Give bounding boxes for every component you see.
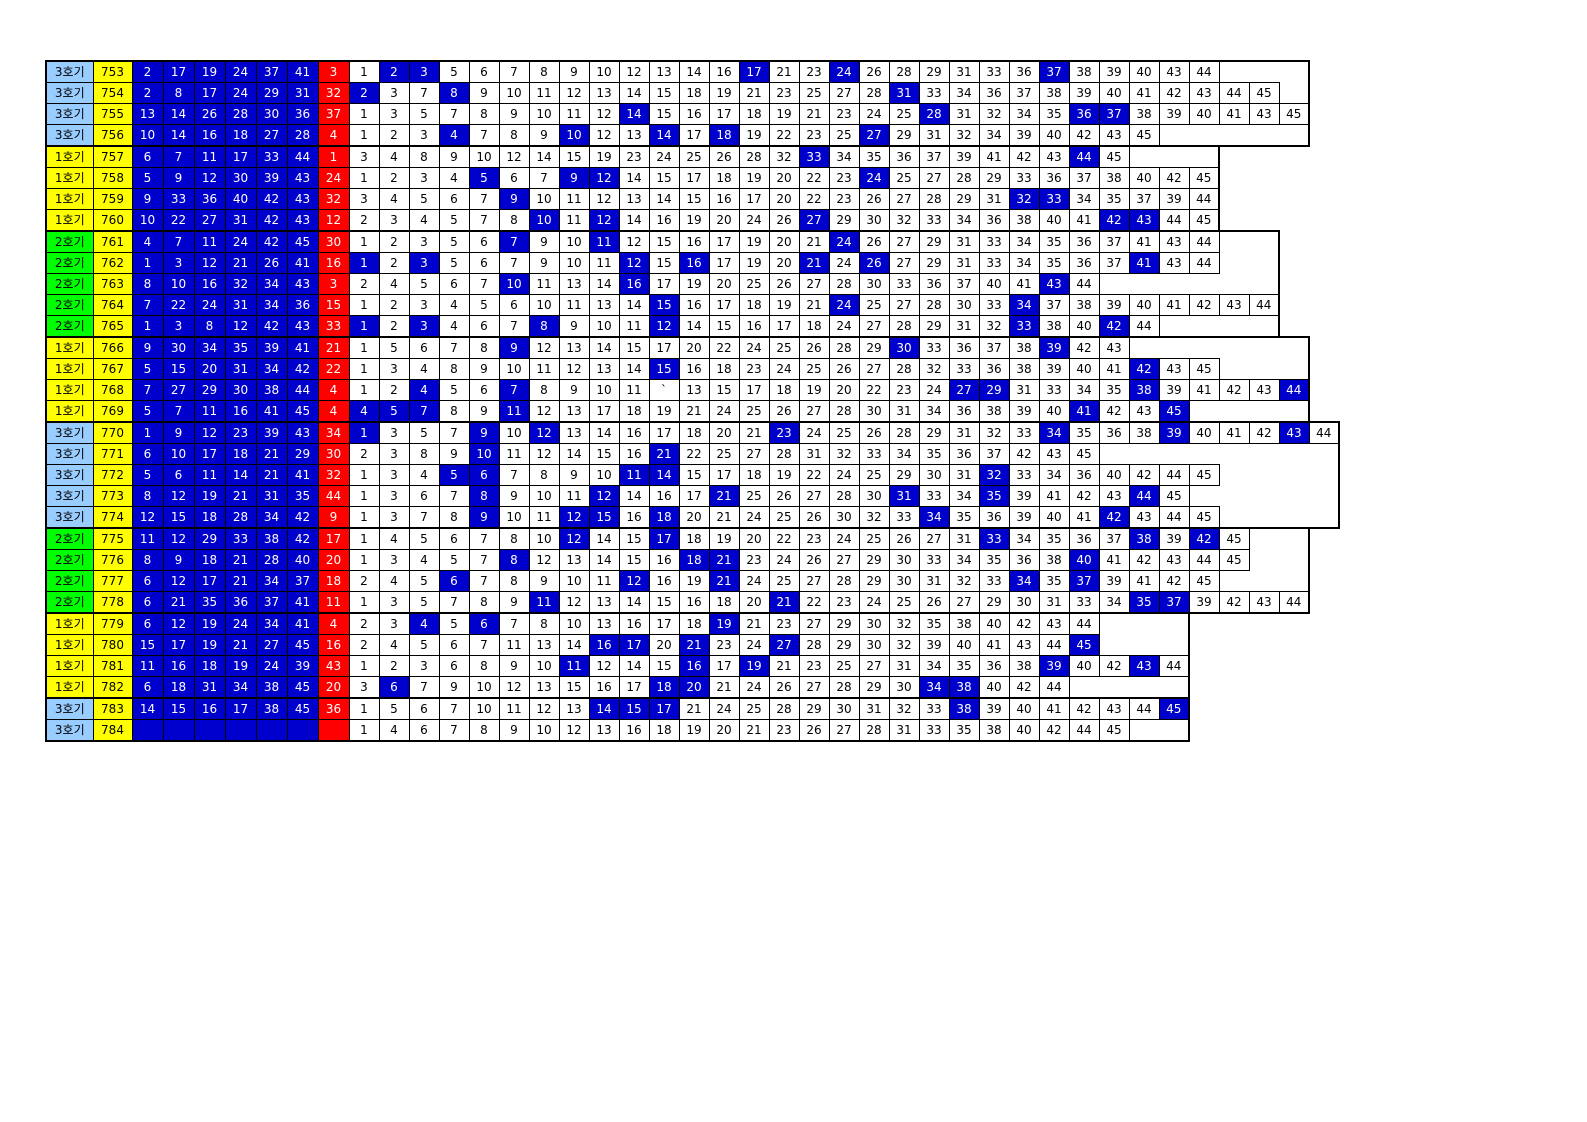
number-grid-cell[interactable]: 27 (889, 189, 919, 210)
round-number-cell[interactable]: 755 (93, 104, 132, 125)
number-grid-cell[interactable]: 20 (769, 253, 799, 274)
machine-label-cell[interactable]: 1호기 (46, 210, 93, 232)
number-grid-cell-highlighted[interactable]: 7 (499, 231, 529, 253)
winning-number-cell[interactable]: 16 (194, 698, 225, 720)
number-grid-cell-highlighted[interactable]: 7 (409, 401, 439, 423)
number-grid-cell[interactable]: 7 (409, 677, 439, 699)
number-grid-cell[interactable]: 10 (589, 380, 619, 401)
number-grid-cell-highlighted[interactable]: 19 (739, 656, 769, 677)
machine-label-cell[interactable]: 3호기 (46, 83, 93, 104)
winning-number-cell[interactable]: 8 (132, 486, 163, 507)
number-grid-cell[interactable]: 17 (679, 168, 709, 189)
winning-number-cell[interactable]: 24 (225, 231, 256, 253)
number-grid-cell[interactable]: 12 (499, 146, 529, 168)
machine-label-cell[interactable]: 1호기 (46, 656, 93, 677)
bonus-number-cell[interactable]: 4 (318, 613, 349, 635)
number-grid-cell[interactable]: 5 (409, 635, 439, 656)
number-grid-cell-highlighted[interactable]: 17 (649, 698, 679, 720)
number-grid-cell[interactable]: 29 (889, 125, 919, 147)
number-grid-cell[interactable]: 7 (439, 486, 469, 507)
winning-number-cell[interactable]: 10 (132, 210, 163, 232)
number-grid-cell[interactable]: 27 (829, 720, 859, 742)
number-grid-cell[interactable]: 43 (1189, 83, 1219, 104)
number-grid-cell-highlighted[interactable]: 12 (589, 486, 619, 507)
number-grid-cell[interactable]: 27 (799, 401, 829, 423)
winning-number-cell[interactable]: 6 (163, 465, 194, 486)
number-grid-cell-highlighted[interactable]: 37 (1159, 592, 1189, 614)
number-grid-cell[interactable]: 20 (769, 231, 799, 253)
number-grid-cell[interactable]: 21 (709, 507, 739, 529)
number-grid-cell-highlighted[interactable]: 44 (1279, 380, 1309, 401)
number-grid-cell[interactable]: 40 (1039, 125, 1069, 147)
number-grid-cell[interactable]: 17 (709, 656, 739, 677)
number-grid-cell[interactable]: 13 (529, 635, 559, 656)
winning-number-cell[interactable]: 18 (194, 507, 225, 529)
number-grid-cell[interactable]: 44 (1189, 253, 1219, 274)
number-grid-cell[interactable]: 10 (499, 83, 529, 104)
number-grid-cell[interactable]: 10 (559, 571, 589, 592)
number-grid-cell[interactable]: 20 (709, 274, 739, 295)
number-grid-cell[interactable]: 1 (349, 507, 379, 529)
number-grid-cell[interactable]: 6 (499, 168, 529, 189)
number-grid-cell-highlighted[interactable]: 3 (409, 61, 439, 83)
number-grid-cell-highlighted[interactable]: 45 (1159, 401, 1189, 423)
number-grid-cell[interactable]: 23 (769, 83, 799, 104)
number-grid-cell[interactable]: 38 (1039, 550, 1069, 571)
number-grid-cell[interactable]: 25 (829, 656, 859, 677)
winning-number-cell[interactable]: 35 (225, 337, 256, 359)
number-grid-cell-highlighted[interactable]: 8 (499, 550, 529, 571)
number-grid-cell[interactable]: 9 (469, 401, 499, 423)
number-grid-cell[interactable]: 15 (679, 465, 709, 486)
number-grid-cell[interactable]: 15 (649, 231, 679, 253)
number-grid-cell[interactable]: 7 (469, 571, 499, 592)
number-grid-cell[interactable]: 5 (439, 550, 469, 571)
machine-label-cell[interactable]: 3호기 (46, 720, 93, 742)
number-grid-cell-highlighted[interactable]: 36 (1069, 104, 1099, 125)
number-grid-cell[interactable]: 17 (709, 295, 739, 316)
machine-label-cell[interactable]: 1호기 (46, 337, 93, 359)
number-grid-cell[interactable]: 35 (1039, 253, 1069, 274)
winning-number-cell[interactable]: 43 (287, 189, 318, 210)
number-grid-cell-highlighted[interactable]: 14 (619, 104, 649, 125)
number-grid-cell[interactable]: 23 (769, 720, 799, 742)
number-grid-cell[interactable]: 42 (1159, 571, 1189, 592)
number-grid-cell[interactable]: ` (649, 380, 679, 401)
number-grid-cell[interactable]: 40 (949, 635, 979, 656)
number-grid-cell[interactable]: 16 (619, 613, 649, 635)
number-grid-cell[interactable]: 4 (409, 465, 439, 486)
number-grid-cell[interactable]: 39 (1009, 507, 1039, 529)
winning-number-cell[interactable]: 34 (256, 571, 287, 592)
winning-number-cell[interactable]: 43 (287, 168, 318, 189)
winning-number-cell[interactable] (132, 720, 163, 742)
number-grid-cell[interactable]: 43 (1159, 231, 1189, 253)
number-grid-cell[interactable]: 37 (919, 146, 949, 168)
number-grid-cell[interactable]: 31 (949, 104, 979, 125)
machine-label-cell[interactable]: 1호기 (46, 401, 93, 423)
number-grid-cell-highlighted[interactable]: 27 (769, 635, 799, 656)
number-grid-cell[interactable]: 17 (649, 274, 679, 295)
round-number-cell[interactable]: 771 (93, 444, 132, 465)
number-grid-cell[interactable]: 3 (379, 507, 409, 529)
winning-number-cell[interactable]: 8 (132, 550, 163, 571)
number-grid-cell-highlighted[interactable]: 44 (1129, 486, 1159, 507)
winning-number-cell[interactable]: 18 (163, 677, 194, 699)
number-grid-cell[interactable]: 1 (349, 656, 379, 677)
number-grid-cell[interactable]: 5 (409, 592, 439, 614)
winning-number-cell[interactable]: 34 (225, 677, 256, 699)
number-grid-cell[interactable]: 23 (619, 146, 649, 168)
round-number-cell[interactable]: 757 (93, 146, 132, 168)
number-grid-cell[interactable]: 39 (1159, 528, 1189, 550)
number-grid-cell[interactable]: 15 (649, 83, 679, 104)
number-grid-cell[interactable]: 42 (1159, 83, 1189, 104)
number-grid-cell[interactable]: 43 (1249, 104, 1279, 125)
winning-number-cell[interactable]: 34 (256, 274, 287, 295)
number-grid-cell[interactable]: 33 (1069, 592, 1099, 614)
number-grid-cell[interactable]: 28 (889, 422, 919, 444)
number-grid-cell-highlighted[interactable]: 15 (649, 359, 679, 380)
round-number-cell[interactable]: 774 (93, 507, 132, 529)
number-grid-cell-highlighted[interactable]: 37 (1099, 104, 1129, 125)
number-grid-cell[interactable]: 7 (409, 83, 439, 104)
number-grid-cell[interactable]: 23 (739, 359, 769, 380)
winning-number-cell[interactable]: 22 (163, 295, 194, 316)
number-grid-cell[interactable]: 9 (559, 465, 589, 486)
number-grid-cell[interactable]: 45 (1159, 486, 1189, 507)
machine-label-cell[interactable]: 2호기 (46, 295, 93, 316)
number-grid-cell[interactable]: 43 (1039, 444, 1069, 465)
number-grid-cell[interactable]: 43 (1129, 401, 1159, 423)
number-grid-cell[interactable]: 26 (769, 401, 799, 423)
number-grid-cell[interactable]: 43 (1009, 635, 1039, 656)
winning-number-cell[interactable]: 9 (132, 189, 163, 210)
number-grid-cell[interactable]: 38 (1009, 656, 1039, 677)
winning-number-cell[interactable]: 14 (163, 104, 194, 125)
number-grid-cell[interactable]: 14 (589, 528, 619, 550)
number-grid-cell-highlighted[interactable]: 33 (799, 146, 829, 168)
number-grid-cell[interactable]: 43 (1039, 146, 1069, 168)
winning-number-cell[interactable]: 15 (163, 359, 194, 380)
winning-number-cell[interactable]: 39 (256, 168, 287, 189)
number-grid-cell[interactable]: 15 (559, 677, 589, 699)
number-grid-cell[interactable]: 1 (349, 592, 379, 614)
winning-number-cell[interactable]: 28 (225, 507, 256, 529)
number-grid-cell[interactable]: 33 (979, 295, 1009, 316)
number-grid-cell[interactable]: 39 (1099, 571, 1129, 592)
number-grid-cell[interactable]: 2 (349, 274, 379, 295)
round-number-cell[interactable]: 775 (93, 528, 132, 550)
round-number-cell[interactable]: 759 (93, 189, 132, 210)
number-grid-cell[interactable]: 41 (1129, 571, 1159, 592)
winning-number-cell[interactable]: 18 (194, 656, 225, 677)
number-grid-cell[interactable]: 29 (919, 422, 949, 444)
round-number-cell[interactable]: 769 (93, 401, 132, 423)
number-grid-cell[interactable]: 43 (1219, 295, 1249, 316)
round-number-cell[interactable]: 761 (93, 231, 132, 253)
number-grid-cell-highlighted[interactable]: 9 (469, 422, 499, 444)
number-grid-cell[interactable]: 33 (889, 274, 919, 295)
winning-number-cell[interactable]: 30 (163, 337, 194, 359)
number-grid-cell[interactable]: 1 (349, 125, 379, 147)
number-grid-cell[interactable]: 27 (799, 613, 829, 635)
number-grid-cell[interactable]: 7 (439, 422, 469, 444)
number-grid-cell[interactable]: 16 (679, 592, 709, 614)
number-grid-cell[interactable]: 29 (829, 613, 859, 635)
number-grid-cell[interactable]: 3 (349, 146, 379, 168)
number-grid-cell-highlighted[interactable]: 5 (379, 401, 409, 423)
machine-label-cell[interactable]: 2호기 (46, 550, 93, 571)
machine-label-cell[interactable]: 2호기 (46, 274, 93, 295)
number-grid-cell[interactable]: 9 (529, 231, 559, 253)
winning-number-cell[interactable]: 31 (225, 210, 256, 232)
number-grid-cell[interactable]: 41 (1009, 274, 1039, 295)
number-grid-cell[interactable]: 3 (349, 189, 379, 210)
number-grid-cell[interactable]: 24 (859, 592, 889, 614)
number-grid-cell[interactable]: 30 (859, 486, 889, 507)
number-grid-cell[interactable]: 16 (649, 210, 679, 232)
number-grid-cell[interactable]: 2 (379, 168, 409, 189)
winning-number-cell[interactable]: 39 (256, 422, 287, 444)
number-grid-cell[interactable]: 39 (1099, 295, 1129, 316)
number-grid-cell[interactable]: 43 (1099, 486, 1129, 507)
number-grid-cell[interactable]: 18 (649, 720, 679, 742)
winning-number-cell[interactable]: 21 (225, 550, 256, 571)
machine-label-cell[interactable]: 3호기 (46, 698, 93, 720)
number-grid-cell[interactable]: 15 (619, 528, 649, 550)
number-grid-cell[interactable]: 16 (679, 295, 709, 316)
number-grid-cell[interactable]: 11 (529, 359, 559, 380)
number-grid-cell[interactable]: 36 (889, 146, 919, 168)
winning-number-cell[interactable]: 34 (256, 295, 287, 316)
number-grid-cell[interactable]: 31 (889, 401, 919, 423)
winning-number-cell[interactable]: 28 (287, 125, 318, 147)
number-grid-cell[interactable]: 4 (379, 189, 409, 210)
number-grid-cell[interactable]: 33 (1009, 168, 1039, 189)
number-grid-cell[interactable]: 3 (379, 104, 409, 125)
number-grid-cell[interactable]: 43 (1249, 592, 1279, 614)
number-grid-cell-highlighted[interactable]: 21 (679, 635, 709, 656)
number-grid-cell[interactable]: 31 (949, 231, 979, 253)
number-grid-cell[interactable]: 19 (739, 231, 769, 253)
number-grid-cell[interactable]: 12 (529, 337, 559, 359)
number-grid-cell-highlighted[interactable]: 43 (1279, 422, 1309, 444)
number-grid-cell[interactable]: 15 (649, 592, 679, 614)
winning-number-cell[interactable]: 42 (256, 231, 287, 253)
number-grid-cell-highlighted[interactable]: 15 (589, 507, 619, 529)
number-grid-cell[interactable]: 21 (769, 656, 799, 677)
number-grid-cell[interactable]: 34 (1009, 253, 1039, 274)
number-grid-cell[interactable]: 28 (829, 677, 859, 699)
number-grid-cell[interactable]: 18 (709, 168, 739, 189)
number-grid-cell[interactable]: 10 (529, 528, 559, 550)
number-grid-cell[interactable]: 2 (349, 613, 379, 635)
number-grid-cell[interactable]: 2 (379, 253, 409, 274)
number-grid-cell[interactable]: 28 (859, 720, 889, 742)
number-grid-cell[interactable]: 34 (949, 550, 979, 571)
bonus-number-cell[interactable]: 32 (318, 189, 349, 210)
number-grid-cell[interactable]: 41 (1219, 422, 1249, 444)
number-grid-cell[interactable]: 14 (619, 168, 649, 189)
number-grid-cell-highlighted[interactable]: 14 (589, 698, 619, 720)
number-grid-cell[interactable]: 44 (1219, 83, 1249, 104)
number-grid-cell[interactable]: 31 (859, 698, 889, 720)
number-grid-cell[interactable]: 19 (739, 253, 769, 274)
number-grid-cell[interactable]: 8 (499, 571, 529, 592)
number-grid-cell[interactable]: 1 (349, 465, 379, 486)
number-grid-cell[interactable]: 44 (1159, 656, 1189, 677)
number-grid-cell[interactable]: 7 (469, 274, 499, 295)
number-grid-cell[interactable]: 16 (679, 231, 709, 253)
number-grid-cell-highlighted[interactable]: 6 (469, 613, 499, 635)
number-grid-cell[interactable]: 25 (829, 125, 859, 147)
number-grid-cell-highlighted[interactable]: 38 (949, 698, 979, 720)
number-grid-cell[interactable]: 5 (409, 189, 439, 210)
machine-label-cell[interactable]: 1호기 (46, 635, 93, 656)
bonus-number-cell[interactable]: 24 (318, 168, 349, 189)
winning-number-cell[interactable]: 8 (163, 83, 194, 104)
machine-label-cell[interactable]: 3호기 (46, 507, 93, 529)
number-grid-cell[interactable]: 13 (589, 295, 619, 316)
winning-number-cell[interactable] (163, 720, 194, 742)
number-grid-cell[interactable]: 11 (619, 380, 649, 401)
number-grid-cell[interactable]: 14 (679, 61, 709, 83)
winning-number-cell[interactable]: 32 (225, 274, 256, 295)
number-grid-cell-highlighted[interactable]: 6 (439, 571, 469, 592)
number-grid-cell[interactable]: 24 (829, 528, 859, 550)
number-grid-cell[interactable]: 45 (1189, 210, 1219, 232)
winning-number-cell[interactable]: 11 (194, 465, 225, 486)
number-grid-cell[interactable]: 19 (589, 146, 619, 168)
number-grid-cell[interactable]: 25 (739, 274, 769, 295)
number-grid-cell[interactable]: 42 (1069, 486, 1099, 507)
winning-number-cell[interactable]: 36 (225, 592, 256, 614)
number-grid-cell[interactable]: 7 (499, 465, 529, 486)
number-grid-cell[interactable]: 38 (979, 401, 1009, 423)
winning-number-cell[interactable]: 6 (132, 613, 163, 635)
number-grid-cell-highlighted[interactable]: 10 (499, 274, 529, 295)
number-grid-cell[interactable]: 3 (409, 295, 439, 316)
round-number-cell[interactable]: 760 (93, 210, 132, 232)
number-grid-cell-highlighted[interactable]: 21 (709, 550, 739, 571)
number-grid-cell[interactable]: 35 (949, 656, 979, 677)
winning-number-cell[interactable]: 27 (194, 210, 225, 232)
number-grid-cell[interactable]: 21 (739, 613, 769, 635)
number-grid-cell-highlighted[interactable]: 34 (1009, 571, 1039, 592)
number-grid-cell[interactable]: 40 (1129, 295, 1159, 316)
machine-label-cell[interactable]: 1호기 (46, 359, 93, 380)
number-grid-cell[interactable]: 31 (889, 656, 919, 677)
number-grid-cell[interactable]: 29 (859, 571, 889, 592)
winning-number-cell[interactable]: 44 (287, 380, 318, 401)
number-grid-cell[interactable]: 25 (829, 422, 859, 444)
winning-number-cell[interactable]: 21 (256, 465, 287, 486)
winning-number-cell[interactable]: 11 (194, 231, 225, 253)
bonus-number-cell[interactable]: 32 (318, 465, 349, 486)
number-grid-cell-highlighted[interactable]: 10 (529, 210, 559, 232)
number-grid-cell-highlighted[interactable]: 31 (889, 83, 919, 104)
number-grid-cell-highlighted[interactable]: 35 (979, 486, 1009, 507)
number-grid-cell[interactable]: 27 (919, 528, 949, 550)
winning-number-cell[interactable]: 1 (132, 422, 163, 444)
winning-number-cell[interactable]: 42 (256, 210, 287, 232)
number-grid-cell[interactable]: 9 (529, 253, 559, 274)
number-grid-cell[interactable]: 10 (499, 359, 529, 380)
number-grid-cell[interactable]: 23 (829, 104, 859, 125)
number-grid-cell-highlighted[interactable]: 30 (889, 337, 919, 359)
number-grid-cell[interactable]: 8 (529, 465, 559, 486)
round-number-cell[interactable]: 768 (93, 380, 132, 401)
number-grid-cell[interactable]: 12 (559, 83, 589, 104)
number-grid-cell[interactable]: 8 (499, 125, 529, 147)
number-grid-cell[interactable]: 27 (859, 656, 889, 677)
winning-number-cell[interactable]: 29 (194, 528, 225, 550)
winning-number-cell[interactable]: 31 (225, 359, 256, 380)
number-grid-cell[interactable]: 15 (649, 168, 679, 189)
winning-number-cell[interactable]: 22 (163, 210, 194, 232)
number-grid-cell[interactable]: 14 (619, 83, 649, 104)
winning-number-cell[interactable] (194, 720, 225, 742)
number-grid-cell-highlighted[interactable]: 33 (1009, 316, 1039, 338)
number-grid-cell[interactable]: 4 (409, 359, 439, 380)
winning-number-cell[interactable]: 21 (225, 571, 256, 592)
number-grid-cell[interactable]: 26 (859, 422, 889, 444)
number-grid-cell[interactable]: 29 (919, 61, 949, 83)
number-grid-cell[interactable]: 30 (919, 465, 949, 486)
winning-number-cell[interactable]: 30 (256, 104, 287, 125)
number-grid-cell[interactable]: 12 (589, 125, 619, 147)
winning-number-cell[interactable]: 6 (132, 571, 163, 592)
number-grid-cell[interactable]: 10 (469, 698, 499, 720)
number-grid-cell-highlighted[interactable]: 24 (829, 295, 859, 316)
number-grid-cell[interactable]: 25 (769, 507, 799, 529)
number-grid-cell[interactable]: 7 (469, 528, 499, 550)
number-grid-cell[interactable]: 35 (949, 720, 979, 742)
machine-label-cell[interactable]: 3호기 (46, 444, 93, 465)
number-grid-cell[interactable]: 13 (559, 698, 589, 720)
number-grid-cell[interactable]: 22 (799, 168, 829, 189)
number-grid-cell[interactable]: 32 (769, 146, 799, 168)
number-grid-cell-highlighted[interactable]: 17 (649, 528, 679, 550)
number-grid-cell[interactable]: 1 (349, 380, 379, 401)
number-grid-cell[interactable]: 15 (649, 104, 679, 125)
number-grid-cell[interactable]: 28 (949, 168, 979, 189)
number-grid-cell-highlighted[interactable]: 21 (649, 444, 679, 465)
number-grid-cell[interactable]: 42 (1219, 592, 1249, 614)
winning-number-cell[interactable]: 7 (132, 380, 163, 401)
number-grid-cell[interactable]: 27 (829, 550, 859, 571)
number-grid-cell[interactable]: 21 (739, 83, 769, 104)
number-grid-cell[interactable]: 14 (679, 316, 709, 338)
number-grid-cell[interactable]: 32 (859, 507, 889, 529)
winning-number-cell[interactable]: 24 (225, 83, 256, 104)
round-number-cell[interactable]: 770 (93, 422, 132, 444)
number-grid-cell[interactable]: 15 (619, 337, 649, 359)
number-grid-cell[interactable]: 31 (949, 316, 979, 338)
number-grid-cell-highlighted[interactable]: 26 (859, 253, 889, 274)
winning-number-cell[interactable] (287, 720, 318, 742)
number-grid-cell[interactable]: 19 (709, 528, 739, 550)
number-grid-cell[interactable]: 42 (1009, 613, 1039, 635)
number-grid-cell[interactable]: 43 (1249, 380, 1279, 401)
number-grid-cell[interactable]: 32 (979, 104, 1009, 125)
bonus-number-cell[interactable]: 43 (318, 656, 349, 677)
number-grid-cell[interactable]: 19 (739, 125, 769, 147)
number-grid-cell[interactable]: 19 (709, 83, 739, 104)
number-grid-cell[interactable]: 17 (709, 231, 739, 253)
number-grid-cell[interactable]: 17 (709, 253, 739, 274)
